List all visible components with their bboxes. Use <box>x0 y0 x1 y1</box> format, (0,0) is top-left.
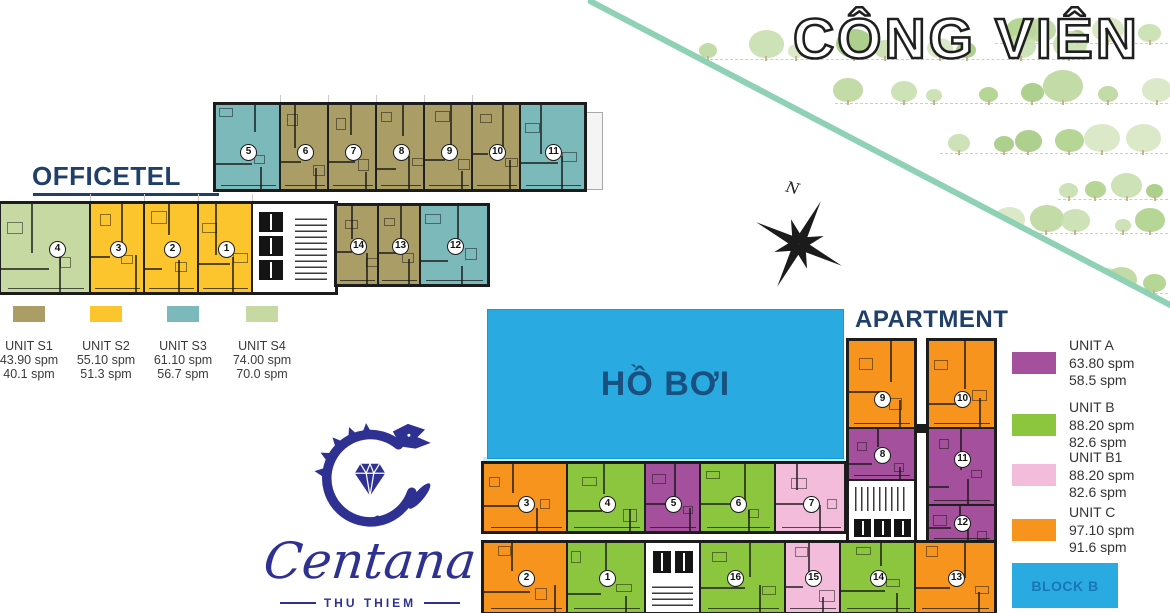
officetel-unit-3[interactable]: 3 <box>90 203 144 293</box>
furniture-mark <box>886 579 900 587</box>
unit-number-badge: 7 <box>345 144 362 161</box>
tree-trunk <box>1003 150 1005 155</box>
interior-wall <box>854 423 910 424</box>
interior-wall <box>574 608 640 609</box>
interior-wall <box>145 268 162 270</box>
interior-wall <box>285 185 325 186</box>
legend-unit-name: UNIT S4 <box>220 339 304 353</box>
unit-number-badge: 7 <box>803 496 820 513</box>
apartment-unit-3[interactable]: 3 <box>483 463 567 532</box>
furniture-mark <box>100 214 111 226</box>
unit-number-badge: 14 <box>870 570 887 587</box>
interior-wall <box>603 464 605 494</box>
legend-swatch <box>90 306 122 322</box>
tree-trunk <box>1068 196 1070 201</box>
unit-number-badge: 9 <box>874 391 891 408</box>
unit-number-badge: 6 <box>297 144 314 161</box>
furniture-mark <box>571 551 581 563</box>
interior-wall <box>708 608 779 609</box>
furniture-mark <box>458 159 470 170</box>
legend-swatch <box>1012 352 1056 374</box>
furniture-mark <box>972 390 987 401</box>
interior-wall <box>461 266 463 285</box>
apartment-unit-4[interactable]: 4 <box>567 463 645 532</box>
tree-icon <box>1055 129 1084 152</box>
furniture-mark <box>859 358 873 370</box>
tree-trunk <box>1149 40 1151 45</box>
furniture-mark <box>939 439 949 449</box>
interior-wall <box>203 288 248 289</box>
unit-number-badge: 10 <box>954 391 971 408</box>
tree-trunk <box>988 100 990 105</box>
furniture-mark <box>856 547 871 555</box>
unit-number-badge: 12 <box>447 238 464 255</box>
interior-wall <box>402 105 404 136</box>
unit-number-badge: 1 <box>599 570 616 587</box>
tree-icon <box>749 30 784 58</box>
furniture-mark <box>336 118 346 130</box>
tree-icon <box>891 81 917 102</box>
interior-wall <box>333 185 373 186</box>
interior-wall <box>473 153 488 155</box>
legend-swatch <box>1012 464 1056 486</box>
apartment-unit-8[interactable]: 8 <box>848 428 915 480</box>
apartment-unit-2[interactable]: 2 <box>483 542 567 613</box>
furniture-mark <box>971 470 982 478</box>
apartment-row-bottom: 2116151413 <box>481 540 997 613</box>
legend-area-gross: 55.10 spm <box>64 353 148 367</box>
interior-wall <box>491 608 562 609</box>
apartment-unit-12[interactable]: 12 <box>928 505 995 543</box>
tree-icon <box>968 212 993 232</box>
apartment-core <box>848 480 915 543</box>
interior-wall <box>340 280 375 281</box>
furniture-mark <box>706 471 720 479</box>
interior-wall <box>890 341 892 382</box>
interior-wall <box>929 486 949 488</box>
tree-trunk <box>933 100 935 105</box>
tree-icon <box>1015 130 1042 152</box>
apartment-unit-14[interactable]: 14 <box>840 542 915 613</box>
furniture-mark <box>425 214 441 224</box>
unit-number-badge: 8 <box>393 144 410 161</box>
tree-ground-line <box>940 153 1168 154</box>
unit-number-badge: 3 <box>110 241 127 258</box>
officetel-unit-8[interactable]: 8 <box>376 104 424 190</box>
unit-number-badge: 4 <box>599 496 616 513</box>
unit-number-badge: 10 <box>489 144 506 161</box>
legend-item-unit-b: UNIT B88.20 spm82.6 spm <box>1012 399 1170 452</box>
legend-item-unit-s1: UNIT S143.90 spm40.1 spm <box>0 306 71 381</box>
furniture-mark <box>384 218 395 226</box>
legend-item-unit-s3: UNIT S361.10 spm56.7 spm <box>141 306 225 381</box>
legend-unit-name: UNIT S1 <box>0 339 71 353</box>
interior-wall <box>877 429 879 447</box>
legend-swatch <box>1012 414 1056 436</box>
unit-number-badge: 11 <box>545 144 562 161</box>
tree-ground-line <box>835 103 1168 104</box>
unit-number-badge: 14 <box>350 238 367 255</box>
interior-wall <box>149 288 194 289</box>
interior-wall <box>922 608 989 609</box>
officetel-unit-12[interactable]: 12 <box>420 205 488 285</box>
interior-wall <box>8 288 84 289</box>
service-annex <box>585 112 603 190</box>
apartment-wing-left: 98 <box>846 338 917 545</box>
officetel-unit-6[interactable]: 6 <box>280 104 328 190</box>
apartment-row-top: 34567 <box>481 461 847 534</box>
pool-label: HỒ BƠI <box>601 365 730 404</box>
interior-wall <box>568 593 601 595</box>
interior-wall <box>646 503 665 505</box>
legend-item-unit-s4: UNIT S474.00 spm70.0 spm <box>220 306 304 381</box>
unit-number-badge: 11 <box>954 451 971 468</box>
legend-swatch <box>167 306 199 322</box>
elevator-door <box>270 238 272 254</box>
furniture-mark <box>505 158 518 167</box>
unit-number-badge: 2 <box>164 241 181 258</box>
furniture-mark <box>202 223 217 233</box>
furniture-mark <box>712 552 727 562</box>
interior-wall <box>95 288 140 289</box>
staircase <box>295 214 327 280</box>
legend-area-gross: 63.80 spm <box>1069 355 1170 373</box>
tree-ground-line <box>1058 199 1168 200</box>
officetel-unit-9[interactable]: 9 <box>424 104 472 190</box>
tree-trunk <box>903 100 905 105</box>
interior-wall <box>199 263 230 265</box>
interior-wall <box>707 527 770 528</box>
interior-wall <box>216 163 252 165</box>
elevator-door <box>270 214 272 230</box>
legend-area-net: 56.7 spm <box>141 367 225 381</box>
tree-trunk <box>1126 196 1128 201</box>
legend-item-unit-b1: UNIT B188.20 spm82.6 spm <box>1012 449 1170 502</box>
furniture-mark <box>358 159 369 171</box>
interior-wall <box>365 172 367 190</box>
officetel-unit-10[interactable]: 10 <box>472 104 520 190</box>
interior-wall <box>526 185 581 186</box>
elevator-door <box>882 521 884 535</box>
legend-unit-name: UNIT A <box>1069 337 1170 355</box>
interior-wall <box>568 510 602 512</box>
apartment-unit-6[interactable]: 6 <box>700 463 775 532</box>
officetel-unit-4[interactable]: 4 <box>0 203 90 293</box>
furniture-mark <box>60 257 71 268</box>
legend-area-net: 51.3 spm <box>64 367 148 381</box>
apartment-unit-15[interactable]: 15 <box>785 542 840 613</box>
tree-icon <box>1061 209 1090 232</box>
logo-rule-right <box>424 602 460 604</box>
furniture-mark <box>933 515 947 526</box>
furniture-mark <box>402 253 414 263</box>
furniture-mark <box>975 586 989 594</box>
apartment-unit-1[interactable]: 1 <box>567 542 645 613</box>
legend-area-gross: 61.10 spm <box>141 353 225 367</box>
officetel-unit-5[interactable]: 5 <box>215 104 280 190</box>
interior-wall <box>426 280 483 281</box>
legend-area-net: 82.6 spm <box>1069 484 1170 502</box>
interior-wall <box>461 171 463 190</box>
interior-wall <box>329 161 355 163</box>
tree-trunk <box>1107 100 1109 105</box>
officetel-unit-2[interactable]: 2 <box>144 203 198 293</box>
tree-trunk <box>1068 150 1070 155</box>
tree-icon <box>833 78 863 102</box>
legend-unit-name: UNIT S3 <box>141 339 225 353</box>
furniture-mark <box>894 463 904 472</box>
elevator-door <box>902 521 904 535</box>
legend-swatch <box>246 306 278 322</box>
apartment-unit-16[interactable]: 16 <box>700 542 785 613</box>
interior-wall <box>934 423 990 424</box>
legend-area-gross: 43.90 spm <box>0 353 71 367</box>
logo-rule-left <box>280 602 316 604</box>
site-plan: CÔNG VIÊN OFFICETEL APARTMENT HỒ BƠI 567… <box>0 0 1170 613</box>
furniture-mark <box>151 211 167 224</box>
interior-wall <box>967 479 969 505</box>
interior-wall <box>429 185 469 186</box>
officetel-unit-11[interactable]: 11 <box>520 104 585 190</box>
tree-trunk <box>980 230 982 235</box>
elevator-door <box>862 521 864 535</box>
tree-icon <box>1043 70 1083 102</box>
legend-unit-name: UNIT S2 <box>64 339 148 353</box>
interior-wall <box>929 527 951 529</box>
interior-wall <box>978 592 980 613</box>
interior-wall <box>381 185 421 186</box>
tree-trunk <box>1062 100 1064 105</box>
furniture-mark <box>233 253 248 263</box>
apartment-core <box>645 542 700 613</box>
furniture-mark <box>652 474 666 484</box>
apartment-unit-9[interactable]: 9 <box>848 340 915 428</box>
interior-wall <box>91 256 110 258</box>
tree-icon <box>1030 205 1064 232</box>
interior-wall <box>674 464 676 496</box>
furniture-mark <box>582 477 597 486</box>
furniture-mark <box>562 152 577 162</box>
tree-trunk <box>1121 290 1123 295</box>
unit-number-badge: 13 <box>392 238 409 255</box>
legend-area-gross: 88.20 spm <box>1069 467 1170 485</box>
interior-wall <box>1 268 49 270</box>
interior-wall <box>896 593 898 613</box>
interior-wall <box>512 464 514 493</box>
logo-subtitle-row: THU THIEM <box>250 596 490 610</box>
elevator-door <box>270 262 272 278</box>
interior-wall <box>749 543 751 577</box>
furniture-mark <box>219 108 233 117</box>
interior-wall <box>776 503 805 505</box>
furniture-mark <box>313 165 325 176</box>
interior-wall <box>350 105 352 135</box>
furniture-mark <box>926 546 938 557</box>
interior-wall <box>854 475 910 476</box>
furniture-mark <box>934 360 948 370</box>
legend-item-unit-c: UNIT C97.10 spm91.6 spm <box>1012 504 1170 557</box>
tree-trunk <box>958 150 960 155</box>
interior-wall <box>221 185 276 186</box>
officetel-row-a: 567891011 <box>213 102 587 192</box>
furniture-mark <box>175 262 187 272</box>
tree-trunk <box>1149 230 1151 235</box>
interior-wall <box>421 260 448 262</box>
unit-number-badge: 5 <box>240 144 257 161</box>
legend-swatch <box>13 306 45 322</box>
furniture-mark <box>381 112 392 122</box>
officetel-unit-1[interactable]: 1 <box>198 203 252 293</box>
officetel-unit-14[interactable]: 14 <box>336 205 378 285</box>
tree-trunk <box>1074 230 1076 235</box>
apartment-unit-13[interactable]: 13 <box>915 542 995 613</box>
unit-number-badge: 15 <box>805 570 822 587</box>
interior-wall <box>790 608 836 609</box>
interior-wall <box>477 185 517 186</box>
logo-subtitle: THU THIEM <box>324 596 416 610</box>
officetel-unit-7[interactable]: 7 <box>328 104 376 190</box>
tree-trunk <box>1105 290 1107 295</box>
interior-wall <box>574 527 640 528</box>
furniture-mark <box>623 509 637 522</box>
tree-trunk <box>1154 196 1156 201</box>
interior-wall <box>31 204 33 253</box>
interior-wall <box>484 591 530 593</box>
interior-wall <box>540 105 542 154</box>
unit-number-badge: 5 <box>665 496 682 513</box>
furniture-mark <box>535 588 547 600</box>
interior-wall <box>849 463 872 465</box>
park-title: CÔNG VIÊN <box>793 6 1140 72</box>
legend-area-gross: 88.20 spm <box>1069 417 1170 435</box>
furniture-mark <box>287 114 298 126</box>
legend-swatch <box>1012 519 1056 541</box>
interior-wall <box>650 527 696 528</box>
furniture-mark <box>435 111 450 122</box>
tree-trunk <box>847 100 849 105</box>
legend-item-unit-s2: UNIT S255.10 spm51.3 spm <box>64 306 148 381</box>
unit-number-badge: 3 <box>518 496 535 513</box>
dragon-diamond-icon <box>275 422 465 534</box>
tree-icon <box>1111 173 1142 198</box>
tree-icon <box>1084 124 1120 152</box>
furniture-mark <box>827 499 837 509</box>
apartment-unit-5[interactable]: 5 <box>645 463 700 532</box>
unit-number-badge: 13 <box>948 570 965 587</box>
interior-wall <box>337 251 352 253</box>
furniture-mark <box>498 546 511 556</box>
furniture-mark <box>795 547 808 557</box>
interior-wall <box>377 168 396 170</box>
unit-number-badge: 4 <box>49 241 66 258</box>
apartment-unit-7[interactable]: 7 <box>775 463 845 532</box>
officetel-core <box>252 203 336 293</box>
legend-area-gross: 97.10 spm <box>1069 522 1170 540</box>
legend-item-unit-a: UNIT A63.80 spm58.5 spm <box>1012 337 1170 390</box>
elevator-door <box>683 553 685 571</box>
legend-unit-name: UNIT B <box>1069 399 1170 417</box>
interior-wall <box>168 204 170 235</box>
officetel-row-c: 141312 <box>334 203 490 287</box>
furniture-mark <box>525 123 540 133</box>
furniture-mark <box>489 477 500 487</box>
unit-number-badge: 16 <box>727 570 744 587</box>
interior-wall <box>254 105 256 132</box>
officetel-row-b: 4321 <box>0 201 338 295</box>
interior-wall <box>841 590 885 592</box>
interior-wall <box>782 527 841 528</box>
interior-wall <box>491 527 562 528</box>
apartment-wing-right: 101112 <box>926 338 997 545</box>
interior-wall <box>786 586 803 588</box>
furniture-mark <box>345 220 358 229</box>
tree-trunk <box>1008 230 1010 235</box>
interior-wall <box>880 543 882 566</box>
interior-wall <box>964 341 966 389</box>
interior-wall <box>382 280 417 281</box>
furniture-mark <box>857 442 867 451</box>
tree-trunk <box>1156 100 1158 105</box>
furniture-mark <box>791 478 807 489</box>
tree-trunk <box>765 56 767 61</box>
officetel-underline <box>33 193 219 196</box>
interior-wall <box>964 543 966 578</box>
interior-wall <box>260 167 262 190</box>
tree-icon <box>1135 208 1165 232</box>
furniture-mark <box>480 114 492 123</box>
staircase <box>855 487 908 511</box>
furniture-mark <box>683 506 693 514</box>
furniture-mark <box>465 248 477 260</box>
tree-ground-line <box>955 233 1168 234</box>
furniture-mark <box>762 586 776 595</box>
elevator-door <box>661 553 663 571</box>
brand-logo: Centana THU THIEM <box>250 420 490 613</box>
block-b-label: BLOCK B <box>1031 578 1098 594</box>
tree-trunk <box>1045 230 1047 235</box>
apartment-title: APARTMENT <box>855 306 1008 334</box>
interior-wall <box>425 159 445 161</box>
interior-wall <box>701 587 745 589</box>
interior-wall <box>294 105 296 148</box>
furniture-mark <box>366 258 378 267</box>
interior-wall <box>625 596 627 613</box>
legend-area-net: 91.6 spm <box>1069 539 1170 557</box>
block-b-badge[interactable]: BLOCK B <box>1012 563 1118 608</box>
officetel-unit-13[interactable]: 13 <box>378 205 420 285</box>
apartment-unit-11[interactable]: 11 <box>928 428 995 505</box>
interior-wall <box>511 543 513 571</box>
furniture-mark <box>412 158 424 166</box>
unit-number-badge: 1 <box>218 241 235 258</box>
unit-number-badge: 6 <box>730 496 747 513</box>
interior-wall <box>281 161 301 163</box>
interior-wall <box>847 608 910 609</box>
unit-number-badge: 9 <box>441 144 458 161</box>
tree-trunk <box>1142 150 1144 155</box>
officetel-title: OFFICETEL <box>32 161 181 192</box>
unit-number-badge: 2 <box>518 570 535 587</box>
apartment-unit-10[interactable]: 10 <box>928 340 995 428</box>
interior-wall <box>536 508 538 532</box>
unit-number-badge: 12 <box>954 515 971 532</box>
tree-icon <box>1126 124 1161 152</box>
tree-trunk <box>1122 230 1124 235</box>
furniture-mark <box>819 590 835 602</box>
tree-trunk <box>1094 196 1096 201</box>
unit-number-badge: 8 <box>874 447 891 464</box>
logo-wordmark: Centana <box>247 532 493 590</box>
